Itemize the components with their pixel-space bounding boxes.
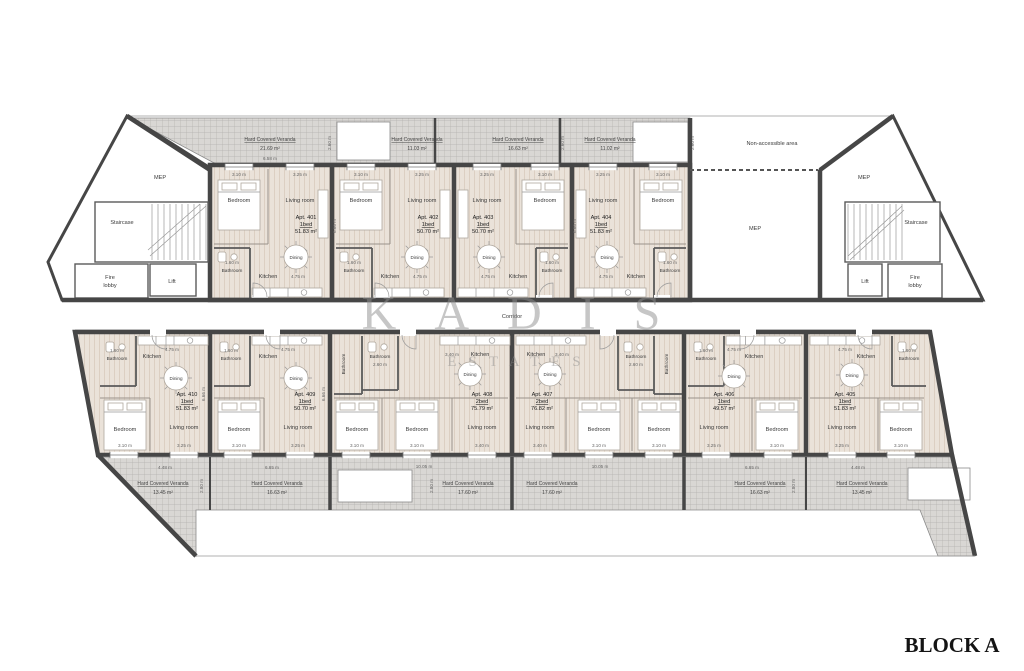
veranda-area: 13.45 m² [852,490,872,496]
dim-label: 2.60 m [560,136,565,150]
dim-label: 10.05 m [592,464,609,469]
dim-label: 3.10 m [656,172,670,177]
skylight [337,122,390,160]
room-label: Bathroom [542,268,563,274]
dim-label: 4.75 m [291,274,305,279]
roof-wall [820,116,893,170]
floor-plan-sheet: Hard Covered Veranda 21.69 m² 6.58 m Har… [0,0,1024,671]
room-label: Kitchen [259,354,278,360]
fire-lobby-room [888,264,942,298]
dim-label: 4.75 m [727,347,741,352]
room-label: Living room [473,198,502,204]
room-label: Dining [482,255,495,260]
room-label: Living room [828,425,857,431]
room-label: Bathroom [107,356,128,362]
dim-label: 6.58 m [263,156,277,161]
apt-area: 51.83 m² [834,406,856,412]
dim-label: 3.10 m [538,172,552,177]
sofa [440,190,450,238]
apt-id: Apt. 410 [177,392,198,398]
dim-label: 4.75 m [838,347,852,352]
page-title: BLOCK A [904,633,1000,657]
bed [218,180,260,230]
floor-plan-drawing: Hard Covered Veranda 21.69 m² 6.58 m Har… [0,0,1024,671]
dim-label: 6.65 m [745,465,759,470]
room-label: Dining [463,372,476,377]
dim-label: 4.48 m [851,465,865,470]
veranda-label: Hard Covered Veranda [442,481,493,487]
dim-label: 3.25 m [291,443,305,448]
room-label: Bathroom [221,356,242,362]
dim-label: 1.60 m [699,348,713,353]
dim-label: 10.05 m [416,464,433,469]
room-label: Kitchen [381,274,400,280]
dim-label: 3.25 m [596,172,610,177]
room-label: Bathroom [899,356,920,362]
kitchen-counter [138,336,208,345]
room-label: Bedroom [534,198,557,204]
apt-area: 76.82 m² [531,406,553,412]
dim-label: 3.25 m [177,443,191,448]
veranda-label: Hard Covered Veranda [526,481,577,487]
apt-id: Apt. 407 [532,392,553,398]
dim-label: 3.25 m [415,172,429,177]
dim-label: 1.60 m [225,260,239,265]
dim-label: 6.66 m [321,387,326,401]
apt-type: 1bed [595,222,607,228]
kitchen-counter [726,336,802,345]
apt-type: 1bed [299,399,311,405]
dim-label: 6.66 m [332,219,337,233]
lift-label: Lift [861,279,869,285]
room-label: Bathroom [344,268,365,274]
sofa [458,190,468,238]
dim-label: 3.10 m [410,443,424,448]
bed [522,180,564,230]
mep-label: MEP [858,175,870,181]
mep-label: MEP [749,226,761,232]
apt-id: Apt. 402 [418,215,439,221]
lift-label: Lift [168,279,176,285]
room-label: Bathroom [341,354,347,375]
room-label: Bedroom [114,427,137,433]
dim-label: 3.25 m [835,443,849,448]
dim-label: 3.10 m [232,172,246,177]
room-label: Dining [543,372,556,377]
dim-label: 3.10 m [770,443,784,448]
kitchen-counter [810,336,880,345]
apt-id: Apt. 404 [591,215,612,221]
veranda-area: 16.63 m² [508,146,528,152]
apt-type: 1bed [422,222,434,228]
room-label: Bedroom [346,427,369,433]
room-label: Kitchen [857,354,876,360]
room-label: Bathroom [660,268,681,274]
room-label: Bathroom [664,354,670,375]
apt-type: 1bed [839,399,851,405]
fire-lobby-label: Fire [105,275,115,281]
dim-label: 2.60 m [327,136,332,150]
dim-label: 3.25 m [707,443,721,448]
room-label: Bedroom [406,427,429,433]
apt-id: Apt. 408 [472,392,493,398]
staircase-label: Staircase [110,220,133,226]
apt-area: 50.70 m² [294,406,316,412]
veranda-area: 16.63 m² [750,490,770,496]
room-label: Bathroom [222,268,243,274]
veranda-area: 13.45 m² [153,490,173,496]
veranda-label: Hard Covered Veranda [244,137,295,143]
dim-label: 2.80 m [199,479,204,493]
dim-label: 3.10 m [894,443,908,448]
apt-area: 51.83 m² [590,229,612,235]
apt-area: 50.70 m² [472,229,494,235]
room-label: Living room [286,198,315,204]
watermark-name: KADIS [362,287,699,340]
room-label: Bedroom [890,427,913,433]
room-label: Dining [845,373,858,378]
room-label: Living room [700,425,729,431]
apt-id: Apt. 403 [473,215,494,221]
room-label: Living room [589,198,618,204]
room-label: Living room [170,425,199,431]
dim-label: 2.80 m [429,479,434,493]
dim-label: 4.75 m [281,347,295,352]
dim-label: 3.25 m [293,172,307,177]
dim-label: 1.60 m [545,260,559,265]
staircase-room [95,202,208,262]
dim-label: 6.66 m [201,387,206,401]
apt-type: 1bed [477,222,489,228]
dim-label: 4.75 m [413,274,427,279]
dim-label: 4.75 m [599,274,613,279]
non-accessible-label: Non-accessible area [747,141,799,147]
dim-label: 3.10 m [592,443,606,448]
room-label: Bathroom [626,354,647,360]
room-label: Kitchen [627,274,646,280]
mep-zone: Non-accessible area MEP [690,118,820,300]
room-label: Kitchen [259,274,278,280]
room-label: Dining [289,376,302,381]
dim-label: 4.48 m [158,465,172,470]
top-row: Hard Covered Veranda 21.69 m² 6.58 m Har… [48,116,983,302]
dim-label: 2.60 m [373,362,387,367]
kitchen-counter [252,336,322,345]
room-label: Living room [526,425,555,431]
dim-label: 4.75 m [165,347,179,352]
room-label: Bathroom [370,354,391,360]
skylight [338,470,412,502]
room-label: Living room [408,198,437,204]
apt-id: Apt. 409 [295,392,316,398]
dim-label: 3.40 m [533,443,547,448]
apt-area: 50.70 m² [417,229,439,235]
apt-id: Apt. 406 [714,392,735,398]
dim-label: 3.10 m [350,443,364,448]
dim-label: 3.40 m [475,443,489,448]
apt-id: Apt. 405 [835,392,856,398]
dim-label: 1.60 m [902,348,916,353]
veranda-label: Hard Covered Veranda [492,137,543,143]
skylight [633,122,688,162]
dim-label: 3.10 m [652,443,666,448]
dim-label: 3.10 m [118,443,132,448]
apt-area: 75.79 m² [471,406,493,412]
veranda-label: Hard Covered Veranda [391,137,442,143]
bottom-veranda-strip: 4.48 m Hard Covered Veranda 13.45 m² 6.6… [98,455,975,556]
dim-label: 1.60 m [110,348,124,353]
dim-label: 3.25 m [480,172,494,177]
staircase-label: Staircase [904,220,927,226]
apt-type: 1bed [718,399,730,405]
dim-label: 1.60 m [347,260,361,265]
veranda-area: 16.63 m² [267,490,287,496]
veranda-area: 17.60 m² [542,490,562,496]
dim-label: 2.80 m [791,479,796,493]
sofa [576,190,586,238]
fire-lobby-label: lobby [908,283,922,289]
room-label: Bedroom [228,427,251,433]
room-label: Bedroom [228,198,251,204]
dim-label: 6.65 m [265,465,279,470]
room-label: Dining [727,374,740,379]
fire-lobby-label: Fire [910,275,920,281]
dim-label: 2.60 m [629,362,643,367]
apt-type: 1bed [300,222,312,228]
dim-label: 1.60 m [224,348,238,353]
bed [640,180,682,230]
veranda-area: 11.03 m² [407,146,427,152]
veranda-area: 21.69 m² [260,146,280,152]
room-label: Living room [468,425,497,431]
room-label: Bedroom [588,427,611,433]
dim-label: 1.60 m [663,260,677,265]
room-label: Dining [600,255,613,260]
room-label: Bathroom [696,356,717,362]
veranda-area: 11.02 m² [600,146,620,152]
room-label: Bedroom [652,198,675,204]
apt-type: 1bed [181,399,193,405]
staircase-room [845,202,940,262]
room-label: Kitchen [143,354,162,360]
veranda-label: Hard Covered Veranda [251,481,302,487]
veranda-area: 17.60 m² [458,490,478,496]
dim-label: 3.10 m [354,172,368,177]
right-core: MEP Staircase Lift Fire lobby [820,116,983,300]
apt-area: 49.57 m² [713,406,735,412]
dim-label: 6.66 m [572,219,577,233]
apt-id: Apt. 401 [296,215,317,221]
apt-type: 2bed [476,399,488,405]
fire-lobby-room [75,264,148,298]
apt-area: 51.83 m² [176,406,198,412]
sofa [318,190,328,238]
veranda-label: Hard Covered Veranda [584,137,635,143]
dim-label: 4.75 m [481,274,495,279]
veranda-label: Hard Covered Veranda [836,481,887,487]
room-label: Bedroom [350,198,373,204]
apt-area: 51.83 m² [295,229,317,235]
veranda-hatch [100,457,975,556]
bed [340,180,382,230]
room-label: Dining [410,255,423,260]
room-label: Dining [169,376,182,381]
watermark-sub: ESTATES [447,354,592,370]
apt-type: 2bed [536,399,548,405]
fire-lobby-label: lobby [103,283,117,289]
veranda-label: Hard Covered Veranda [137,481,188,487]
room-label: Dining [289,255,302,260]
room-label: Kitchen [509,274,528,280]
room-label: Living room [284,425,313,431]
room-label: Bedroom [766,427,789,433]
veranda-label: Hard Covered Veranda [734,481,785,487]
mep-label: MEP [154,175,166,181]
dim-label: 3.10 m [232,443,246,448]
room-label: Kitchen [745,354,764,360]
room-label: Bedroom [648,427,671,433]
